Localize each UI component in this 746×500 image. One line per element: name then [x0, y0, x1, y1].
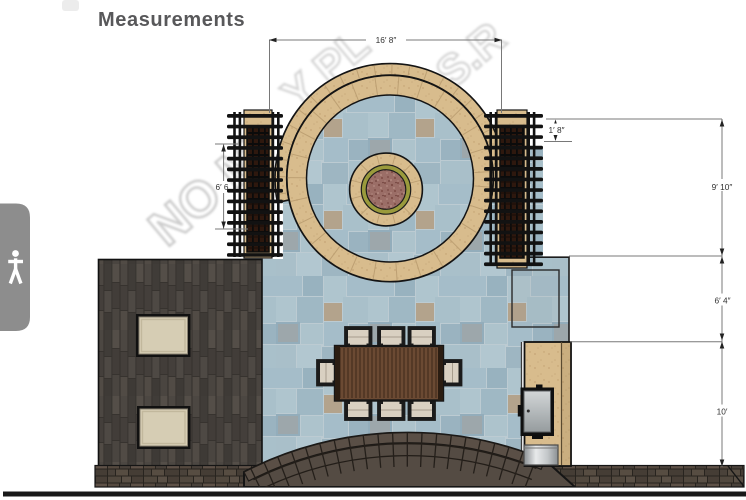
svg-text:9′ 10″: 9′ 10″ — [712, 182, 733, 192]
svg-text:1′ 8″: 1′ 8″ — [548, 125, 564, 135]
svg-text:16′ 8″: 16′ 8″ — [376, 35, 397, 45]
svg-text:10′: 10′ — [717, 407, 728, 417]
svg-text:6′ 6: 6′ 6 — [215, 182, 228, 192]
svg-text:Measurements: Measurements — [98, 9, 245, 31]
svg-text:6′ 4″: 6′ 4″ — [714, 296, 730, 306]
